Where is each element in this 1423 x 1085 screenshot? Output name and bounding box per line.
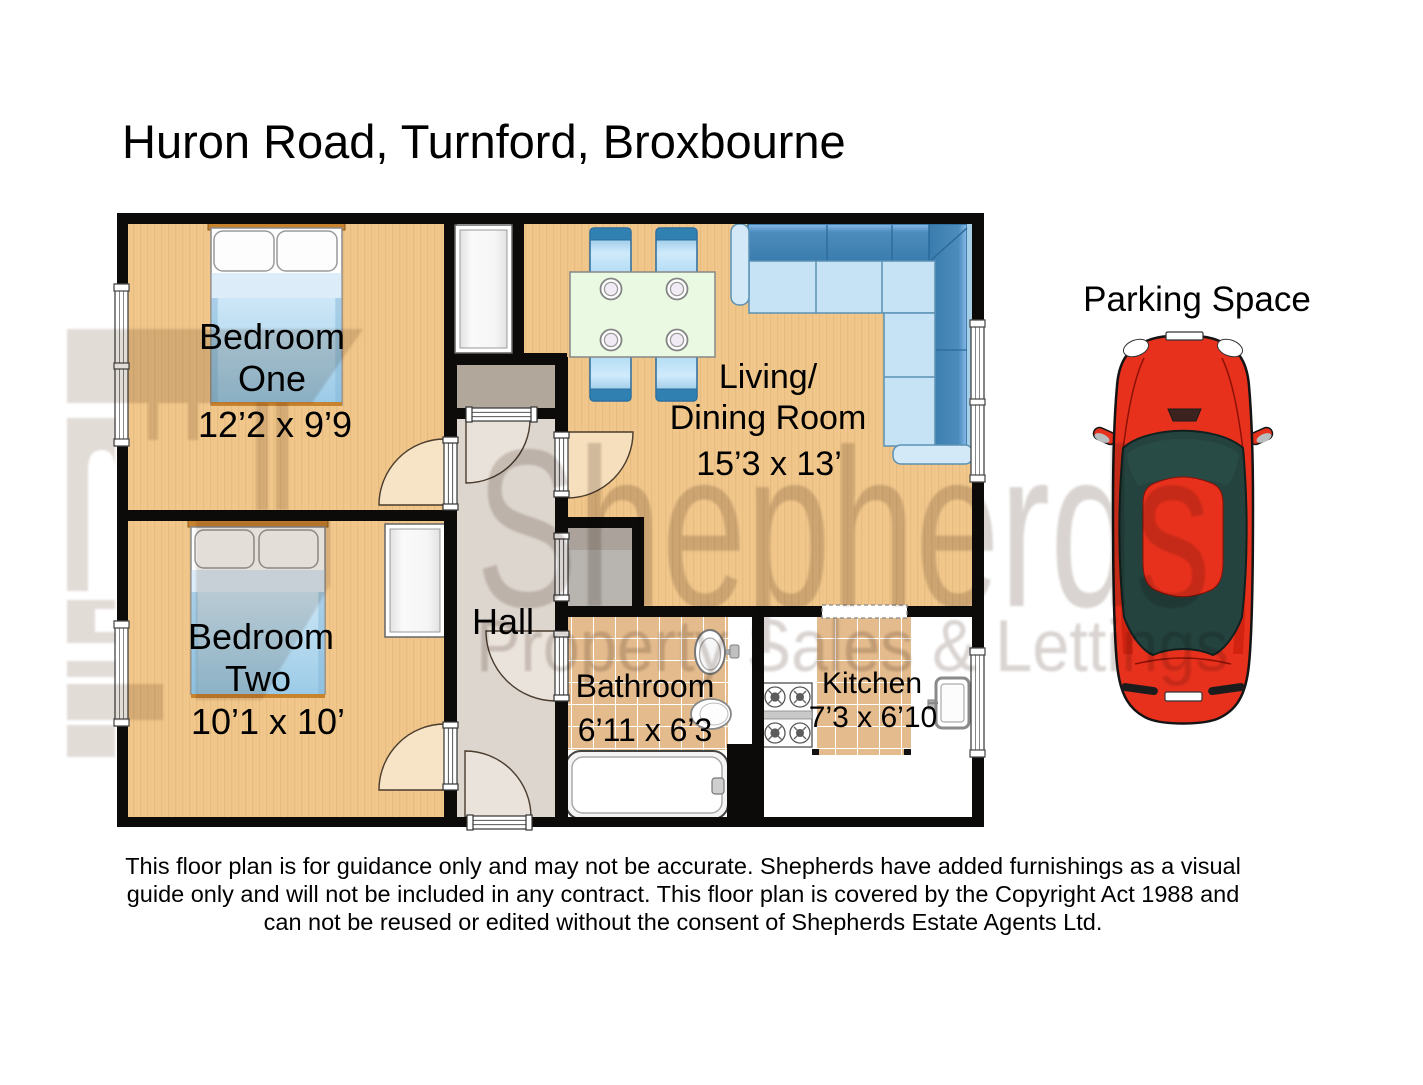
svg-text:guide only and will not be inc: guide only and will not be included in a… (127, 881, 1240, 907)
svg-text:10’1 x 10’: 10’1 x 10’ (191, 701, 345, 742)
svg-text:This floor plan is for guidanc: This floor plan is for guidance only and… (125, 853, 1241, 879)
svg-text:Parking Space: Parking Space (1083, 280, 1311, 319)
svg-text:Property Sales & Lettings: Property Sales & Lettings (476, 605, 1229, 686)
svg-text:Huron Road, Turnford, Broxbour: Huron Road, Turnford, Broxbourne (122, 115, 846, 168)
svg-text:can not be reused or edited wi: can not be reused or edited without the … (264, 909, 1103, 935)
svg-text:12’2 x 9’9: 12’2 x 9’9 (198, 404, 352, 445)
svg-text:Living/: Living/ (719, 358, 818, 396)
svg-text:7’3 x 6’10: 7’3 x 6’10 (809, 701, 937, 734)
svg-text:6’11 x 6’3: 6’11 x 6’3 (578, 712, 713, 748)
